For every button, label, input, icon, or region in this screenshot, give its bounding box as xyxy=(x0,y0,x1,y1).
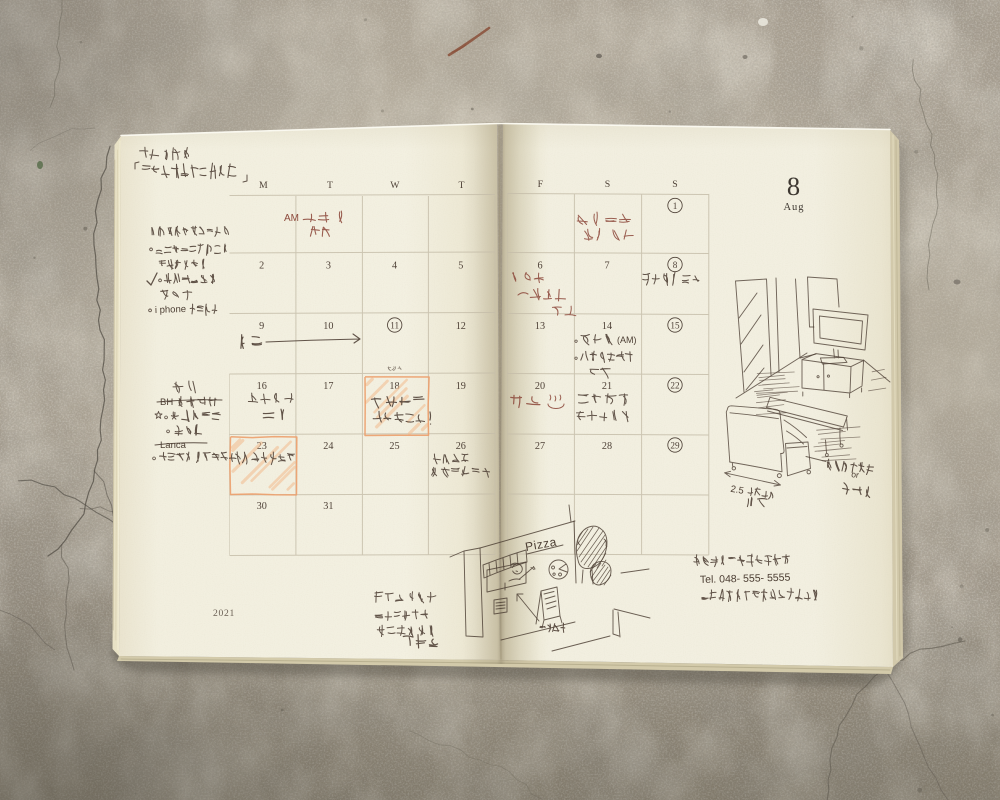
svg-text:8: 8 xyxy=(787,171,800,201)
svg-text:15: 15 xyxy=(670,321,680,331)
svg-text:5: 5 xyxy=(458,261,463,272)
svg-text:21: 21 xyxy=(602,381,612,392)
svg-text:M: M xyxy=(259,180,268,191)
svg-text:or: or xyxy=(851,469,860,480)
svg-text:9: 9 xyxy=(259,321,264,332)
svg-text:S: S xyxy=(672,179,677,190)
svg-text:22: 22 xyxy=(670,381,680,391)
svg-text:Tel. 048- 555- 5555: Tel. 048- 555- 5555 xyxy=(700,572,791,586)
svg-text:11: 11 xyxy=(390,321,399,331)
svg-text:26: 26 xyxy=(456,441,466,452)
svg-text:16: 16 xyxy=(257,381,267,392)
svg-text:Lanca: Lanca xyxy=(160,440,187,451)
svg-text:W: W xyxy=(390,180,400,191)
svg-text:13: 13 xyxy=(535,321,545,332)
svg-text:19: 19 xyxy=(456,381,466,392)
svg-text:i phone: i phone xyxy=(155,304,187,316)
svg-text:3: 3 xyxy=(326,261,331,272)
svg-text:14: 14 xyxy=(602,321,612,332)
svg-text:2.5: 2.5 xyxy=(730,484,745,497)
svg-text:T: T xyxy=(459,180,465,191)
svg-text:24: 24 xyxy=(323,441,333,452)
svg-text:30: 30 xyxy=(257,501,267,512)
svg-text:2: 2 xyxy=(259,261,264,272)
svg-text:1: 1 xyxy=(673,201,678,211)
svg-text:31: 31 xyxy=(323,501,333,512)
svg-text:AM: AM xyxy=(284,213,299,224)
svg-text:8: 8 xyxy=(673,260,678,270)
svg-text:10: 10 xyxy=(323,321,333,332)
svg-text:4: 4 xyxy=(392,261,397,272)
svg-text:S: S xyxy=(605,179,610,190)
svg-text:18: 18 xyxy=(389,381,399,392)
svg-text:17: 17 xyxy=(323,381,333,392)
svg-text:12: 12 xyxy=(456,321,466,332)
svg-text:2021: 2021 xyxy=(213,608,235,619)
svg-text:20: 20 xyxy=(535,381,545,392)
svg-text:28: 28 xyxy=(602,441,612,452)
svg-text:27: 27 xyxy=(535,441,545,452)
svg-text:6: 6 xyxy=(537,261,542,272)
svg-text:BH: BH xyxy=(160,397,173,408)
svg-text:25: 25 xyxy=(389,441,399,452)
svg-text:F: F xyxy=(538,179,544,190)
svg-text:7: 7 xyxy=(604,261,609,272)
svg-text:29: 29 xyxy=(670,441,680,451)
svg-text:Aug: Aug xyxy=(783,202,804,213)
svg-text:T: T xyxy=(327,180,333,191)
svg-text:(AM): (AM) xyxy=(617,335,637,345)
